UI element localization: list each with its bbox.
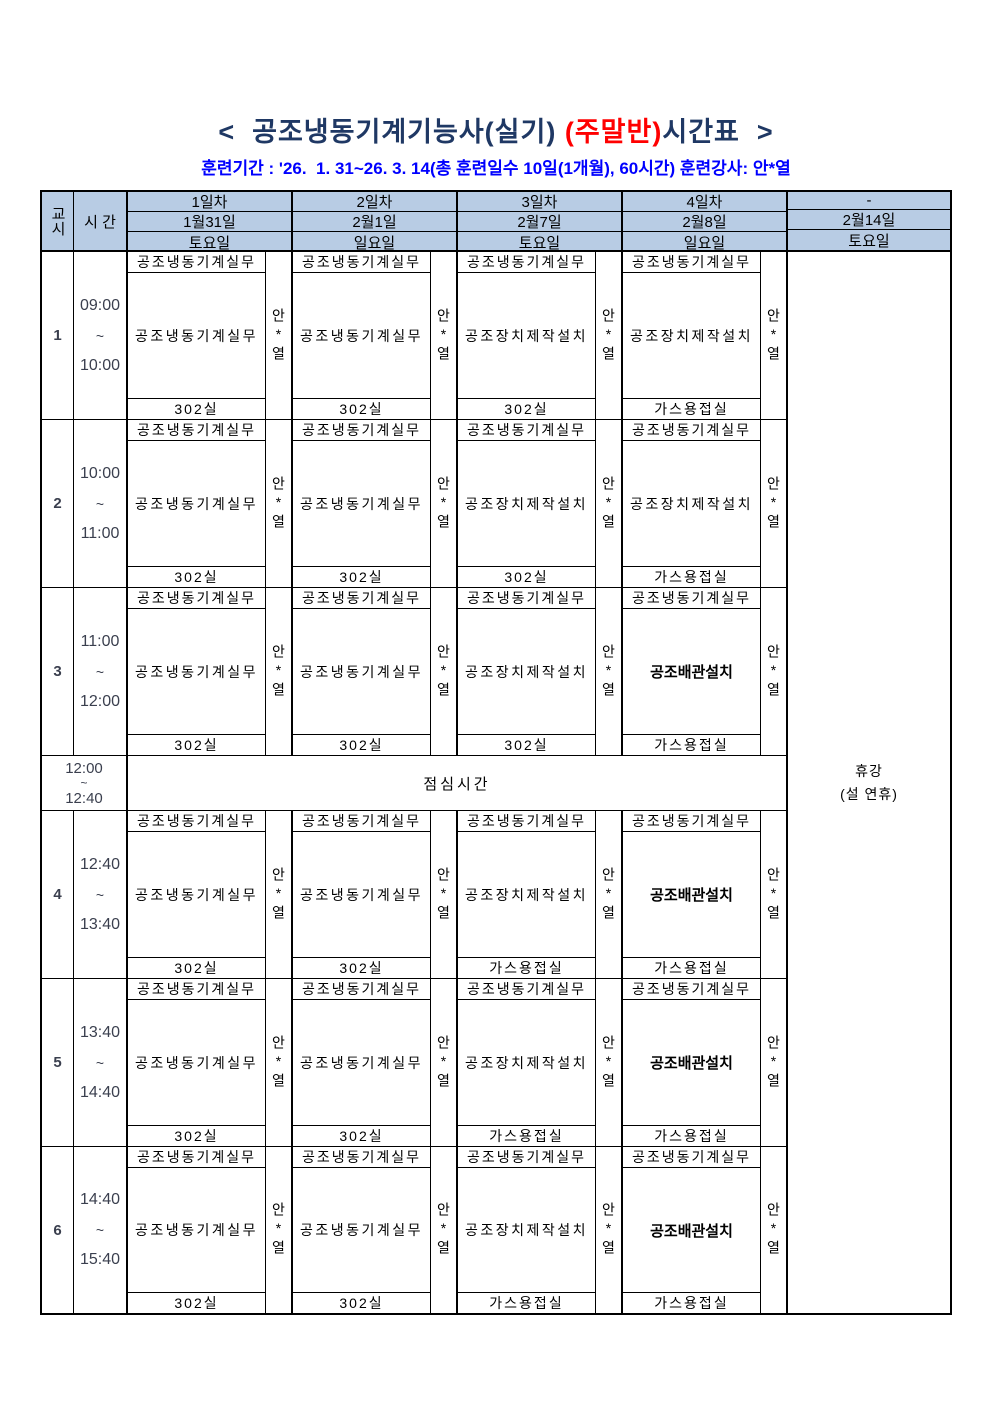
instructor-name: 안*열 xyxy=(761,811,786,978)
day-cell-3: 공조냉동기계실무 공조장치제작설치 302실 안*열 xyxy=(458,420,623,587)
time-start: 09:00 xyxy=(80,297,120,315)
day-cell-1: 공조냉동기계실무 공조냉동기계실무 302실 안*열 xyxy=(128,1147,293,1313)
subject-title: 공조냉동기계실무 xyxy=(128,979,265,1000)
subject-title: 공조냉동기계실무 xyxy=(128,811,265,832)
day-date: 2월14일 xyxy=(788,210,950,230)
subject-title: 공조냉동기계실무 xyxy=(293,252,430,273)
tilde: ~ xyxy=(96,664,104,680)
room-label: 가스용접실 xyxy=(623,1125,760,1146)
time-end: 15:40 xyxy=(80,1251,120,1269)
subject-title: 공조냉동기계실무 xyxy=(128,1147,265,1168)
subject-content: 공조냉동기계실무 xyxy=(293,273,430,398)
subject-cell: 공조냉동기계실무 공조냉동기계실무 302실 xyxy=(293,252,431,419)
period-row: 6 14:40 ~ 15:40 공조냉동기계실무 공조냉동기계실무 302실 안… xyxy=(42,1147,788,1313)
subject-cell: 공조냉동기계실무 공조장치제작설치 가스용접실 xyxy=(623,252,761,419)
holiday-cell: 휴강 (설 연휴) xyxy=(788,252,950,1313)
tilde: ~ xyxy=(96,328,104,344)
subject-content: 공조장치제작설치 xyxy=(623,441,760,566)
period-number: 2 xyxy=(42,420,74,587)
header-day-3: 3일차 2월7일 토요일 xyxy=(458,192,623,250)
day-cell-3: 공조냉동기계실무 공조장치제작설치 가스용접실 안*열 xyxy=(458,979,623,1146)
room-label: 302실 xyxy=(128,1125,265,1146)
period-number: 4 xyxy=(42,811,74,978)
room-label: 302실 xyxy=(293,566,430,587)
period-row: 1 09:00 ~ 10:00 공조냉동기계실무 공조냉동기계실무 302실 안… xyxy=(42,252,788,420)
subject-title: 공조냉동기계실무 xyxy=(458,420,595,441)
subject-content: 공조냉동기계실무 xyxy=(128,609,265,734)
subject-cell: 공조냉동기계실무 공조장치제작설치 302실 xyxy=(458,420,596,587)
instructor-name: 안*열 xyxy=(596,1147,621,1313)
subject-cell: 공조냉동기계실무 공조배관설치 가스용접실 xyxy=(623,1147,761,1313)
day-label: 3일차 xyxy=(458,192,621,212)
subject-cell: 공조냉동기계실무 공조냉동기계실무 302실 xyxy=(128,811,266,978)
room-label: 가스용접실 xyxy=(623,734,760,755)
tilde: ~ xyxy=(96,1222,104,1238)
table-body: 1 09:00 ~ 10:00 공조냉동기계실무 공조냉동기계실무 302실 안… xyxy=(42,252,950,1313)
instructor-name: 안*열 xyxy=(596,252,621,419)
period-row: 5 13:40 ~ 14:40 공조냉동기계실무 공조냉동기계실무 302실 안… xyxy=(42,979,788,1147)
subject-title: 공조냉동기계실무 xyxy=(458,811,595,832)
day-cell-4: 공조냉동기계실무 공조배관설치 가스용접실 안*열 xyxy=(623,588,788,755)
tilde: ~ xyxy=(80,777,87,790)
room-label: 가스용접실 xyxy=(623,398,760,419)
period-number: 5 xyxy=(42,979,74,1146)
day-cell-4: 공조냉동기계실무 공조장치제작설치 가스용접실 안*열 xyxy=(623,252,788,419)
room-label: 가스용접실 xyxy=(623,1292,760,1313)
day-cell-2: 공조냉동기계실무 공조냉동기계실무 302실 안*열 xyxy=(293,420,458,587)
period-time: 13:40 ~ 14:40 xyxy=(74,979,128,1146)
subject-cell: 공조냉동기계실무 공조장치제작설치 302실 xyxy=(458,252,596,419)
instructor-name: 안*열 xyxy=(761,252,786,419)
day-weekday: 토요일 xyxy=(128,232,291,252)
table-header: 교시 시 간 1일차 1월31일 토요일 2일차 2월1일 일요일 3일차 2월… xyxy=(42,192,950,252)
subject-cell: 공조냉동기계실무 공조장치제작설치 가스용접실 xyxy=(458,979,596,1146)
subject-content: 공조배관설치 xyxy=(623,1168,760,1292)
time-start: 12:40 xyxy=(80,856,120,874)
subject-content: 공조냉동기계실무 xyxy=(293,1000,430,1125)
day-cell-4: 공조냉동기계실무 공조배관설치 가스용접실 안*열 xyxy=(623,1147,788,1313)
instructor-name: 안*열 xyxy=(431,811,456,978)
subject-content: 공조장치제작설치 xyxy=(458,1000,595,1125)
timetable: 교시 시 간 1일차 1월31일 토요일 2일차 2월1일 일요일 3일차 2월… xyxy=(40,190,952,1315)
period-time: 09:00 ~ 10:00 xyxy=(74,252,128,419)
subject-title: 공조냉동기계실무 xyxy=(293,979,430,1000)
subject-content: 공조배관설치 xyxy=(623,1000,760,1125)
period-number: 3 xyxy=(42,588,74,755)
instructor-name: 안*열 xyxy=(431,1147,456,1313)
subject-title: 공조냉동기계실무 xyxy=(458,979,595,1000)
day-date: 1월31일 xyxy=(128,212,291,232)
day-weekday: 토요일 xyxy=(788,230,950,250)
subject-title: 공조냉동기계실무 xyxy=(293,1147,430,1168)
time-end: 11:00 xyxy=(81,525,120,543)
period-time: 14:40 ~ 15:40 xyxy=(74,1147,128,1313)
header-day-5: - 2월14일 토요일 xyxy=(788,192,950,250)
instructor-name: 안*열 xyxy=(266,588,291,755)
subject-title: 공조냉동기계실무 xyxy=(128,420,265,441)
instructor-name: 안*열 xyxy=(431,588,456,755)
day-label: 1일차 xyxy=(128,192,291,212)
day-cell-3: 공조냉동기계실무 공조장치제작설치 가스용접실 안*열 xyxy=(458,811,623,978)
subject-content: 공조장치제작설치 xyxy=(458,441,595,566)
day-date: 2월8일 xyxy=(623,212,786,232)
period-rows: 1 09:00 ~ 10:00 공조냉동기계실무 공조냉동기계실무 302실 안… xyxy=(42,252,788,1313)
time-end: 12:00 xyxy=(80,693,120,711)
day-label: 2일차 xyxy=(293,192,456,212)
instructor-name: 안*열 xyxy=(596,811,621,978)
day-label: - xyxy=(788,192,950,210)
instructor-name: 안*열 xyxy=(761,979,786,1146)
day-cell-2: 공조냉동기계실무 공조냉동기계실무 302실 안*열 xyxy=(293,811,458,978)
instructor-name: 안*열 xyxy=(761,420,786,587)
subject-content: 공조냉동기계실무 xyxy=(293,609,430,734)
subject-cell: 공조냉동기계실무 공조냉동기계실무 302실 xyxy=(293,588,431,755)
holiday-line1: 휴강 xyxy=(855,760,883,783)
period-number: 6 xyxy=(42,1147,74,1313)
period-time: 11:00 ~ 12:00 xyxy=(74,588,128,755)
room-label: 302실 xyxy=(128,1292,265,1313)
room-label: 302실 xyxy=(128,398,265,419)
room-label: 302실 xyxy=(128,734,265,755)
day-date: 2월1일 xyxy=(293,212,456,232)
subject-content: 공조냉동기계실무 xyxy=(128,832,265,957)
header-day-1: 1일차 1월31일 토요일 xyxy=(128,192,293,250)
subject-cell: 공조냉동기계실무 공조냉동기계실무 302실 xyxy=(293,979,431,1146)
instructor-name: 안*열 xyxy=(266,252,291,419)
instructor-name: 안*열 xyxy=(266,979,291,1146)
day-cell-2: 공조냉동기계실무 공조냉동기계실무 302실 안*열 xyxy=(293,1147,458,1313)
time-end: 10:00 xyxy=(80,357,120,375)
instructor-name: 안*열 xyxy=(596,588,621,755)
room-label: 302실 xyxy=(458,734,595,755)
subject-content: 공조배관설치 xyxy=(623,609,760,734)
period-row: 3 11:00 ~ 12:00 공조냉동기계실무 공조냉동기계실무 302실 안… xyxy=(42,588,788,756)
time-start: 10:00 xyxy=(80,465,120,483)
subject-title: 공조냉동기계실무 xyxy=(128,588,265,609)
room-label: 302실 xyxy=(293,1125,430,1146)
subject-content: 공조배관설치 xyxy=(623,832,760,957)
lunch-start: 12:00 xyxy=(65,760,103,777)
period-time: 10:00 ~ 11:00 xyxy=(74,420,128,587)
subject-title: 공조냉동기계실무 xyxy=(623,811,760,832)
subject-cell: 공조냉동기계실무 공조장치제작설치 가스용접실 xyxy=(458,1147,596,1313)
period-row: 2 10:00 ~ 11:00 공조냉동기계실무 공조냉동기계실무 302실 안… xyxy=(42,420,788,588)
day-weekday: 토요일 xyxy=(458,232,621,252)
room-label: 302실 xyxy=(458,398,595,419)
subject-cell: 공조냉동기계실무 공조냉동기계실무 302실 xyxy=(293,420,431,587)
subject-cell: 공조냉동기계실무 공조냉동기계실무 302실 xyxy=(128,420,266,587)
day-cell-3: 공조냉동기계실무 공조장치제작설치 302실 안*열 xyxy=(458,588,623,755)
room-label: 302실 xyxy=(293,398,430,419)
instructor-name: 안*열 xyxy=(431,979,456,1146)
room-label: 가스용접실 xyxy=(623,957,760,978)
day-weekday: 일요일 xyxy=(293,232,456,252)
day-cell-2: 공조냉동기계실무 공조냉동기계실무 302실 안*열 xyxy=(293,252,458,419)
subject-title: 공조냉동기계실무 xyxy=(458,588,595,609)
day-cell-2: 공조냉동기계실무 공조냉동기계실무 302실 안*열 xyxy=(293,588,458,755)
instructor-name: 안*열 xyxy=(266,811,291,978)
subject-cell: 공조냉동기계실무 공조냉동기계실무 302실 xyxy=(128,588,266,755)
subject-title: 공조냉동기계실무 xyxy=(293,420,430,441)
day-cell-3: 공조냉동기계실무 공조장치제작설치 가스용접실 안*열 xyxy=(458,1147,623,1313)
header-time-column: 시 간 xyxy=(74,192,128,250)
page-title: < 공조냉동기계기능사(실기) (주말반)시간표 > xyxy=(0,110,992,149)
room-label: 가스용접실 xyxy=(458,1292,595,1313)
day-date: 2월7일 xyxy=(458,212,621,232)
day-cell-2: 공조냉동기계실무 공조냉동기계실무 302실 안*열 xyxy=(293,979,458,1146)
lunch-end: 12:40 xyxy=(65,790,103,807)
tilde: ~ xyxy=(96,1055,104,1071)
room-label: 302실 xyxy=(293,1292,430,1313)
subject-content: 공조장치제작설치 xyxy=(458,1168,595,1292)
time-start: 13:40 xyxy=(80,1024,120,1042)
time-end: 14:40 xyxy=(80,1084,120,1102)
subject-title: 공조냉동기계실무 xyxy=(458,252,595,273)
day-cell-4: 공조냉동기계실무 공조장치제작설치 가스용접실 안*열 xyxy=(623,420,788,587)
room-label: 302실 xyxy=(128,957,265,978)
instructor-name: 안*열 xyxy=(596,420,621,587)
instructor-name: 안*열 xyxy=(266,420,291,587)
day-cell-1: 공조냉동기계실무 공조냉동기계실무 302실 안*열 xyxy=(128,979,293,1146)
day-cell-1: 공조냉동기계실무 공조냉동기계실무 302실 안*열 xyxy=(128,811,293,978)
subject-cell: 공조냉동기계실무 공조장치제작설치 가스용접실 xyxy=(458,811,596,978)
timetable-page: < 공조냉동기계기능사(실기) (주말반)시간표 > 훈련기간 : '26. 1… xyxy=(0,0,992,1403)
instructor-name: 안*열 xyxy=(431,252,456,419)
subject-title: 공조냉동기계실무 xyxy=(623,1147,760,1168)
subject-title: 공조냉동기계실무 xyxy=(623,979,760,1000)
subject-title: 공조냉동기계실무 xyxy=(623,252,760,273)
subject-title: 공조냉동기계실무 xyxy=(293,811,430,832)
title-prefix: < 공조냉동기계기능사(실기) xyxy=(218,117,565,147)
day-label: 4일차 xyxy=(623,192,786,212)
subject-cell: 공조냉동기계실무 공조냉동기계실무 302실 xyxy=(128,979,266,1146)
room-label: 302실 xyxy=(458,566,595,587)
subject-title: 공조냉동기계실무 xyxy=(623,420,760,441)
header-day-4: 4일차 2월8일 일요일 xyxy=(623,192,788,250)
period-number: 1 xyxy=(42,252,74,419)
day-cell-1: 공조냉동기계실무 공조냉동기계실무 302실 안*열 xyxy=(128,420,293,587)
time-start: 14:40 xyxy=(80,1191,120,1209)
subject-content: 공조냉동기계실무 xyxy=(293,441,430,566)
subject-content: 공조장치제작설치 xyxy=(623,273,760,398)
room-label: 302실 xyxy=(293,957,430,978)
subject-title: 공조냉동기계실무 xyxy=(623,588,760,609)
lunch-time: 12:00 ~ 12:40 xyxy=(42,756,128,810)
subject-cell: 공조냉동기계실무 공조냉동기계실무 302실 xyxy=(128,1147,266,1313)
instructor-name: 안*열 xyxy=(761,1147,786,1313)
subject-cell: 공조냉동기계실무 공조배관설치 가스용접실 xyxy=(623,811,761,978)
time-start: 11:00 xyxy=(81,633,120,651)
room-label: 가스용접실 xyxy=(458,957,595,978)
subject-content: 공조냉동기계실무 xyxy=(128,1168,265,1292)
subject-content: 공조냉동기계실무 xyxy=(128,273,265,398)
subject-title: 공조냉동기계실무 xyxy=(128,252,265,273)
subject-cell: 공조냉동기계실무 공조냉동기계실무 302실 xyxy=(293,811,431,978)
header-period-column: 교시 xyxy=(42,192,74,250)
day-weekday: 일요일 xyxy=(623,232,786,252)
day-cell-4: 공조냉동기계실무 공조배관설치 가스용접실 안*열 xyxy=(623,979,788,1146)
subject-cell: 공조냉동기계실무 공조장치제작설치 302실 xyxy=(458,588,596,755)
tilde: ~ xyxy=(96,496,104,512)
subject-cell: 공조냉동기계실무 공조장치제작설치 가스용접실 xyxy=(623,420,761,587)
subject-content: 공조냉동기계실무 xyxy=(128,441,265,566)
day-cell-1: 공조냉동기계실무 공조냉동기계실무 302실 안*열 xyxy=(128,588,293,755)
subject-title: 공조냉동기계실무 xyxy=(293,588,430,609)
subject-content: 공조냉동기계실무 xyxy=(128,1000,265,1125)
subject-title: 공조냉동기계실무 xyxy=(458,1147,595,1168)
header-day-2: 2일차 2월1일 일요일 xyxy=(293,192,458,250)
room-label: 302실 xyxy=(128,566,265,587)
room-label: 가스용접실 xyxy=(458,1125,595,1146)
subject-content: 공조장치제작설치 xyxy=(458,273,595,398)
period-time: 12:40 ~ 13:40 xyxy=(74,811,128,978)
subject-content: 공조장치제작설치 xyxy=(458,609,595,734)
day-cell-1: 공조냉동기계실무 공조냉동기계실무 302실 안*열 xyxy=(128,252,293,419)
day-cell-4: 공조냉동기계실무 공조배관설치 가스용접실 안*열 xyxy=(623,811,788,978)
day-cell-3: 공조냉동기계실무 공조장치제작설치 302실 안*열 xyxy=(458,252,623,419)
subject-cell: 공조냉동기계실무 공조배관설치 가스용접실 xyxy=(623,979,761,1146)
tilde: ~ xyxy=(96,887,104,903)
holiday-line2: (설 연휴) xyxy=(840,783,898,806)
instructor-name: 안*열 xyxy=(266,1147,291,1313)
subject-content: 공조냉동기계실무 xyxy=(293,1168,430,1292)
period-row: 4 12:40 ~ 13:40 공조냉동기계실무 공조냉동기계실무 302실 안… xyxy=(42,811,788,979)
subject-content: 공조냉동기계실무 xyxy=(293,832,430,957)
instructor-name: 안*열 xyxy=(431,420,456,587)
instructor-name: 안*열 xyxy=(596,979,621,1146)
room-label: 가스용접실 xyxy=(623,566,760,587)
lunch-label: 점심시간 xyxy=(128,756,788,810)
title-highlight-weekend-class: (주말반) xyxy=(565,117,663,147)
subject-cell: 공조냉동기계실무 공조배관설치 가스용접실 xyxy=(623,588,761,755)
subject-cell: 공조냉동기계실무 공조냉동기계실무 302실 xyxy=(293,1147,431,1313)
training-period-line: 훈련기간 : '26. 1. 31~26. 3. 14(총 훈련일수 10일(1… xyxy=(0,154,992,179)
title-suffix: 시간표 > xyxy=(662,117,773,147)
subject-cell: 공조냉동기계실무 공조냉동기계실무 302실 xyxy=(128,252,266,419)
lunch-row: 12:00 ~ 12:40 점심시간 xyxy=(42,756,788,811)
time-end: 13:40 xyxy=(80,916,120,934)
room-label: 302실 xyxy=(293,734,430,755)
instructor-name: 안*열 xyxy=(761,588,786,755)
subject-content: 공조장치제작설치 xyxy=(458,832,595,957)
